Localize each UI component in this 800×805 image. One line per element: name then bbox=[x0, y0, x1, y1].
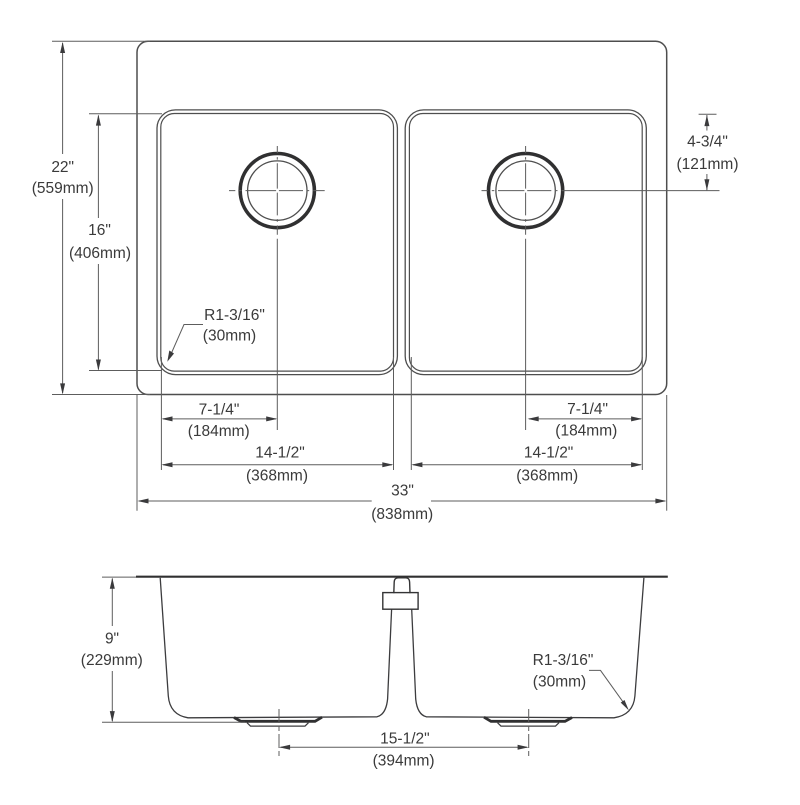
svg-text:14-1/2": 14-1/2" bbox=[524, 445, 573, 462]
svg-text:4-3/4": 4-3/4" bbox=[687, 134, 728, 151]
svg-text:7-1/4": 7-1/4" bbox=[567, 401, 608, 418]
svg-text:(30mm): (30mm) bbox=[533, 673, 586, 690]
svg-text:(394mm): (394mm) bbox=[373, 752, 435, 769]
svg-text:(368mm): (368mm) bbox=[246, 468, 308, 485]
svg-text:7-1/4": 7-1/4" bbox=[199, 401, 240, 418]
svg-text:(184mm): (184mm) bbox=[555, 422, 617, 439]
svg-text:(30mm): (30mm) bbox=[203, 327, 256, 344]
svg-text:33": 33" bbox=[391, 483, 414, 500]
svg-text:(838mm): (838mm) bbox=[371, 506, 433, 523]
svg-text:15-1/2": 15-1/2" bbox=[380, 731, 429, 748]
svg-text:R1-3/16": R1-3/16" bbox=[533, 652, 594, 669]
svg-text:16": 16" bbox=[88, 222, 111, 239]
svg-text:(184mm): (184mm) bbox=[188, 423, 250, 440]
svg-text:(406mm): (406mm) bbox=[69, 245, 131, 262]
svg-text:14-1/2": 14-1/2" bbox=[255, 445, 304, 462]
svg-text:22": 22" bbox=[51, 159, 74, 176]
svg-text:(229mm): (229mm) bbox=[81, 652, 143, 669]
svg-text:(121mm): (121mm) bbox=[676, 156, 738, 173]
svg-text:9": 9" bbox=[105, 631, 119, 648]
svg-text:R1-3/16": R1-3/16" bbox=[204, 307, 265, 324]
svg-text:(559mm): (559mm) bbox=[32, 180, 94, 197]
svg-text:(368mm): (368mm) bbox=[516, 468, 578, 485]
